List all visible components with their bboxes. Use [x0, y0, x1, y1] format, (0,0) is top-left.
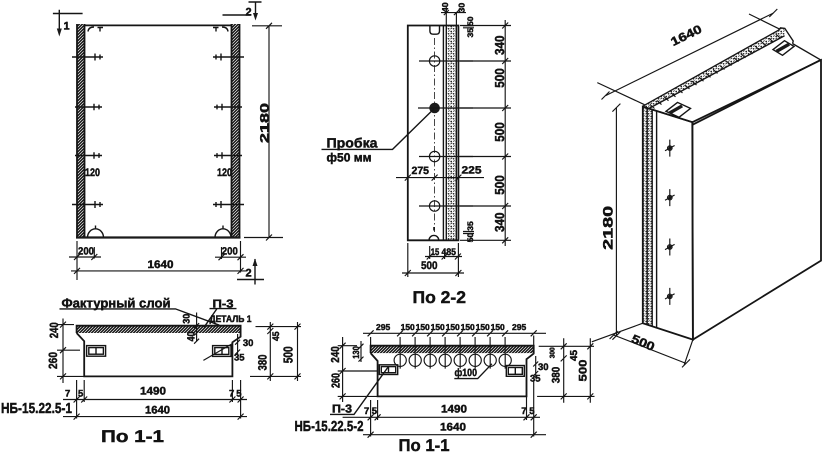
svg-text:40: 40	[186, 331, 198, 341]
svg-text:НБ-15.22.5-1: НБ-15.22.5-1	[1, 401, 72, 417]
svg-text:1: 1	[64, 21, 70, 33]
svg-text:1490: 1490	[441, 403, 467, 415]
svg-text:500: 500	[492, 122, 507, 142]
svg-text:2180: 2180	[257, 103, 271, 143]
svg-text:340: 340	[492, 213, 507, 233]
svg-text:150: 150	[416, 322, 430, 332]
svg-text:5: 5	[529, 406, 535, 417]
svg-text:По 2-2: По 2-2	[413, 288, 467, 307]
svg-text:1640: 1640	[440, 422, 466, 434]
svg-text:150: 150	[461, 322, 475, 332]
svg-text:35: 35	[466, 221, 475, 231]
svg-text:ф50 мм: ф50 мм	[327, 151, 372, 165]
svg-text:150: 150	[491, 322, 505, 332]
svg-text:300: 300	[549, 347, 556, 358]
svg-text:500: 500	[421, 260, 438, 272]
svg-text:295: 295	[512, 322, 526, 332]
svg-text:7: 7	[229, 388, 234, 399]
svg-text:1640: 1640	[148, 259, 174, 271]
svg-text:2180: 2180	[601, 206, 616, 250]
svg-text:500: 500	[492, 68, 507, 88]
svg-text:7: 7	[364, 406, 369, 417]
svg-text:200: 200	[78, 246, 94, 258]
svg-text:НБ-15.22.5-2: НБ-15.22.5-2	[295, 419, 364, 435]
svg-text:240: 240	[330, 346, 342, 363]
svg-text:380: 380	[551, 367, 563, 384]
svg-text:275: 275	[412, 165, 430, 177]
svg-text:295: 295	[376, 322, 390, 332]
svg-text:Пробка: Пробка	[327, 136, 378, 151]
svg-text:340: 340	[492, 36, 507, 56]
svg-text:2: 2	[246, 7, 252, 19]
svg-text:150: 150	[446, 322, 460, 332]
svg-text:7: 7	[521, 406, 526, 417]
svg-text:ДЕТАЛЬ 1: ДЕТАЛЬ 1	[210, 314, 253, 325]
svg-text:1640: 1640	[145, 405, 170, 417]
svg-text:30: 30	[243, 338, 254, 349]
svg-text:7: 7	[65, 388, 70, 399]
svg-text:30: 30	[538, 362, 549, 373]
svg-text:260: 260	[331, 373, 343, 388]
svg-text:120: 120	[217, 167, 232, 179]
svg-text:260: 260	[46, 352, 60, 369]
svg-text:30: 30	[182, 314, 193, 324]
svg-text:120: 120	[85, 167, 100, 179]
svg-text:500: 500	[281, 346, 296, 363]
svg-text:2: 2	[246, 268, 252, 280]
svg-text:По 1-1: По 1-1	[101, 427, 164, 446]
svg-text:240: 240	[47, 322, 61, 338]
svg-text:150: 150	[431, 322, 445, 332]
svg-text:По 1-1: По 1-1	[399, 436, 450, 455]
svg-text:5: 5	[372, 406, 378, 417]
svg-text:50: 50	[466, 16, 475, 26]
svg-text:5: 5	[236, 388, 242, 399]
svg-text:ф100: ф100	[455, 367, 478, 379]
svg-text:500: 500	[577, 360, 589, 382]
svg-text:45: 45	[569, 350, 580, 361]
svg-text:1490: 1490	[140, 385, 166, 397]
svg-text:225: 225	[462, 165, 482, 177]
svg-text:380: 380	[256, 354, 270, 370]
svg-text:45: 45	[271, 331, 282, 341]
svg-text:130: 130	[351, 346, 361, 359]
svg-text:150: 150	[401, 322, 415, 332]
svg-text:35: 35	[466, 27, 475, 37]
svg-text:150: 150	[476, 322, 490, 332]
svg-text:500: 500	[492, 175, 507, 195]
svg-text:5: 5	[78, 388, 84, 399]
svg-text:200: 200	[222, 246, 238, 258]
